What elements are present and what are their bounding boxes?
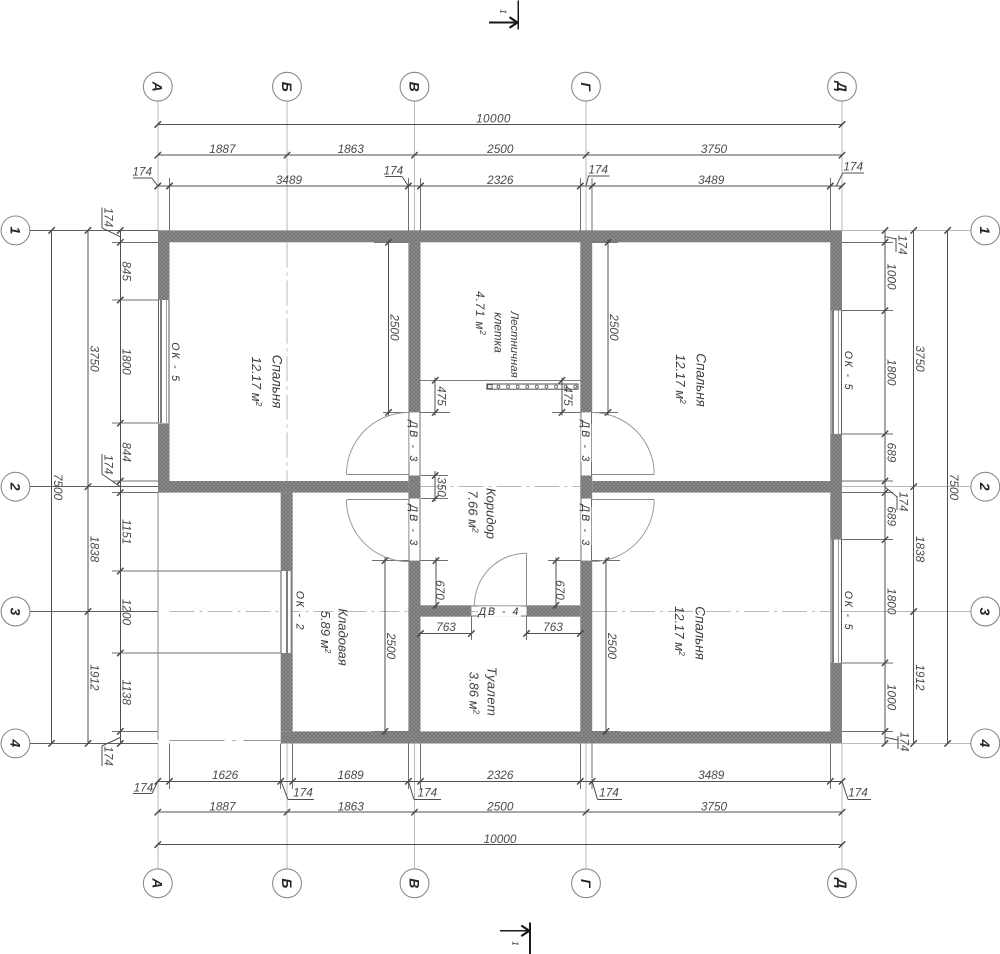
svg-text:3: 3: [7, 608, 23, 616]
svg-text:4: 4: [977, 739, 993, 748]
svg-text:174: 174: [897, 492, 911, 512]
svg-text:Д: Д: [834, 81, 850, 92]
svg-text:1863: 1863: [338, 142, 365, 156]
svg-text:1: 1: [977, 227, 993, 235]
svg-text:670: 670: [553, 580, 567, 600]
svg-text:ДВ - 3: ДВ - 3: [579, 503, 591, 547]
svg-text:1800: 1800: [120, 348, 134, 375]
svg-text:174: 174: [418, 786, 438, 800]
svg-text:174: 174: [134, 781, 154, 795]
svg-text:475: 475: [434, 386, 448, 406]
svg-text:174: 174: [896, 235, 910, 255]
svg-text:1800: 1800: [884, 359, 898, 386]
svg-text:174: 174: [588, 163, 608, 177]
svg-text:174: 174: [101, 208, 115, 228]
svg-text:ДВ - 4: ДВ - 4: [478, 606, 521, 618]
svg-text:3.86 м2: 3.86 м2: [467, 672, 482, 715]
svg-text:2: 2: [7, 482, 23, 491]
svg-text:12.17 м2: 12.17 м2: [673, 354, 688, 404]
svg-text:1689: 1689: [337, 768, 364, 782]
svg-text:Б: Б: [279, 82, 295, 92]
svg-text:5.89 м2: 5.89 м2: [318, 611, 333, 654]
svg-text:ДВ - 3: ДВ - 3: [579, 419, 591, 463]
svg-text:ОК - 5: ОК - 5: [842, 351, 854, 392]
svg-text:3750: 3750: [913, 345, 927, 372]
svg-text:1863: 1863: [338, 800, 365, 814]
svg-text:2: 2: [977, 482, 993, 491]
svg-text:ОК - 5: ОК - 5: [842, 591, 854, 632]
svg-text:1626: 1626: [212, 768, 239, 782]
svg-text:12.17 м2: 12.17 м2: [672, 606, 687, 656]
svg-text:1: 1: [511, 941, 520, 945]
svg-text:3750: 3750: [701, 142, 728, 156]
svg-text:Д: Д: [834, 877, 850, 888]
svg-text:1838: 1838: [87, 536, 101, 563]
svg-text:1151: 1151: [120, 519, 134, 544]
svg-text:670: 670: [433, 580, 447, 600]
svg-text:475: 475: [561, 386, 575, 406]
svg-text:763: 763: [543, 620, 563, 634]
svg-text:3489: 3489: [276, 173, 303, 187]
svg-text:3750: 3750: [701, 800, 728, 814]
svg-text:174: 174: [848, 786, 868, 800]
svg-text:174: 174: [599, 786, 619, 800]
svg-text:350: 350: [434, 477, 448, 497]
svg-text:3: 3: [977, 608, 993, 616]
svg-text:4.71 м2: 4.71 м2: [473, 291, 488, 336]
svg-text:Б: Б: [279, 878, 295, 888]
svg-text:В: В: [406, 878, 422, 888]
svg-text:Г: Г: [578, 879, 594, 889]
svg-text:А: А: [150, 877, 166, 888]
svg-text:4: 4: [7, 739, 23, 748]
svg-text:2500: 2500: [607, 313, 621, 341]
svg-text:174: 174: [101, 746, 115, 766]
svg-text:1887: 1887: [209, 800, 236, 814]
svg-text:Кладовая: Кладовая: [336, 608, 351, 665]
svg-text:174: 174: [898, 732, 912, 752]
svg-text:174: 174: [293, 786, 313, 800]
svg-text:10000: 10000: [476, 112, 511, 126]
svg-text:1: 1: [7, 227, 23, 235]
svg-text:1912: 1912: [913, 664, 927, 691]
svg-text:689: 689: [884, 443, 898, 463]
svg-text:ОК - 5: ОК - 5: [169, 342, 181, 383]
svg-text:2326: 2326: [486, 173, 514, 187]
svg-text:1838: 1838: [913, 536, 927, 563]
svg-text:Спальня: Спальня: [270, 355, 285, 408]
svg-text:2500: 2500: [384, 632, 398, 660]
svg-text:1: 1: [499, 9, 508, 13]
svg-text:В: В: [406, 82, 422, 92]
svg-text:2500: 2500: [486, 800, 514, 814]
svg-text:7500: 7500: [51, 474, 65, 501]
svg-text:1912: 1912: [87, 664, 101, 691]
svg-text:1200: 1200: [120, 599, 134, 626]
svg-text:А: А: [150, 81, 166, 92]
svg-text:1800: 1800: [884, 588, 898, 615]
svg-text:ОК - 2: ОК - 2: [294, 591, 306, 632]
svg-text:ДВ - 3: ДВ - 3: [407, 503, 419, 547]
svg-text:1000: 1000: [884, 263, 898, 290]
svg-text:Туалет: Туалет: [485, 667, 500, 716]
svg-text:2500: 2500: [486, 142, 514, 156]
svg-text:2500: 2500: [388, 313, 402, 341]
svg-text:689: 689: [884, 506, 898, 526]
svg-text:Спальня: Спальня: [694, 353, 709, 406]
svg-text:763: 763: [436, 620, 456, 634]
svg-text:ДВ - 3: ДВ - 3: [407, 419, 419, 463]
svg-text:7500: 7500: [947, 474, 961, 501]
svg-text:10000: 10000: [484, 832, 517, 846]
svg-text:174: 174: [843, 159, 863, 173]
svg-text:клетка: клетка: [492, 312, 506, 353]
svg-text:2500: 2500: [605, 632, 619, 660]
svg-text:174: 174: [384, 164, 404, 178]
svg-text:844: 844: [120, 442, 134, 462]
svg-text:2326: 2326: [486, 768, 514, 782]
svg-text:7.66 м2: 7.66 м2: [466, 490, 481, 533]
svg-text:12.17 м2: 12.17 м2: [249, 357, 264, 407]
svg-text:3750: 3750: [87, 345, 101, 372]
svg-text:3489: 3489: [698, 768, 725, 782]
svg-text:1887: 1887: [209, 142, 236, 156]
svg-text:1000: 1000: [884, 684, 898, 711]
svg-text:Спальня: Спальня: [693, 606, 708, 659]
svg-text:Г: Г: [578, 82, 594, 92]
svg-text:Коридор: Коридор: [484, 488, 499, 539]
svg-text:3489: 3489: [698, 173, 725, 187]
svg-text:845: 845: [120, 261, 134, 281]
svg-text:174: 174: [132, 165, 152, 179]
svg-text:174: 174: [101, 455, 115, 475]
svg-text:Лестничная: Лестничная: [508, 310, 520, 377]
svg-text:1138: 1138: [120, 680, 134, 706]
